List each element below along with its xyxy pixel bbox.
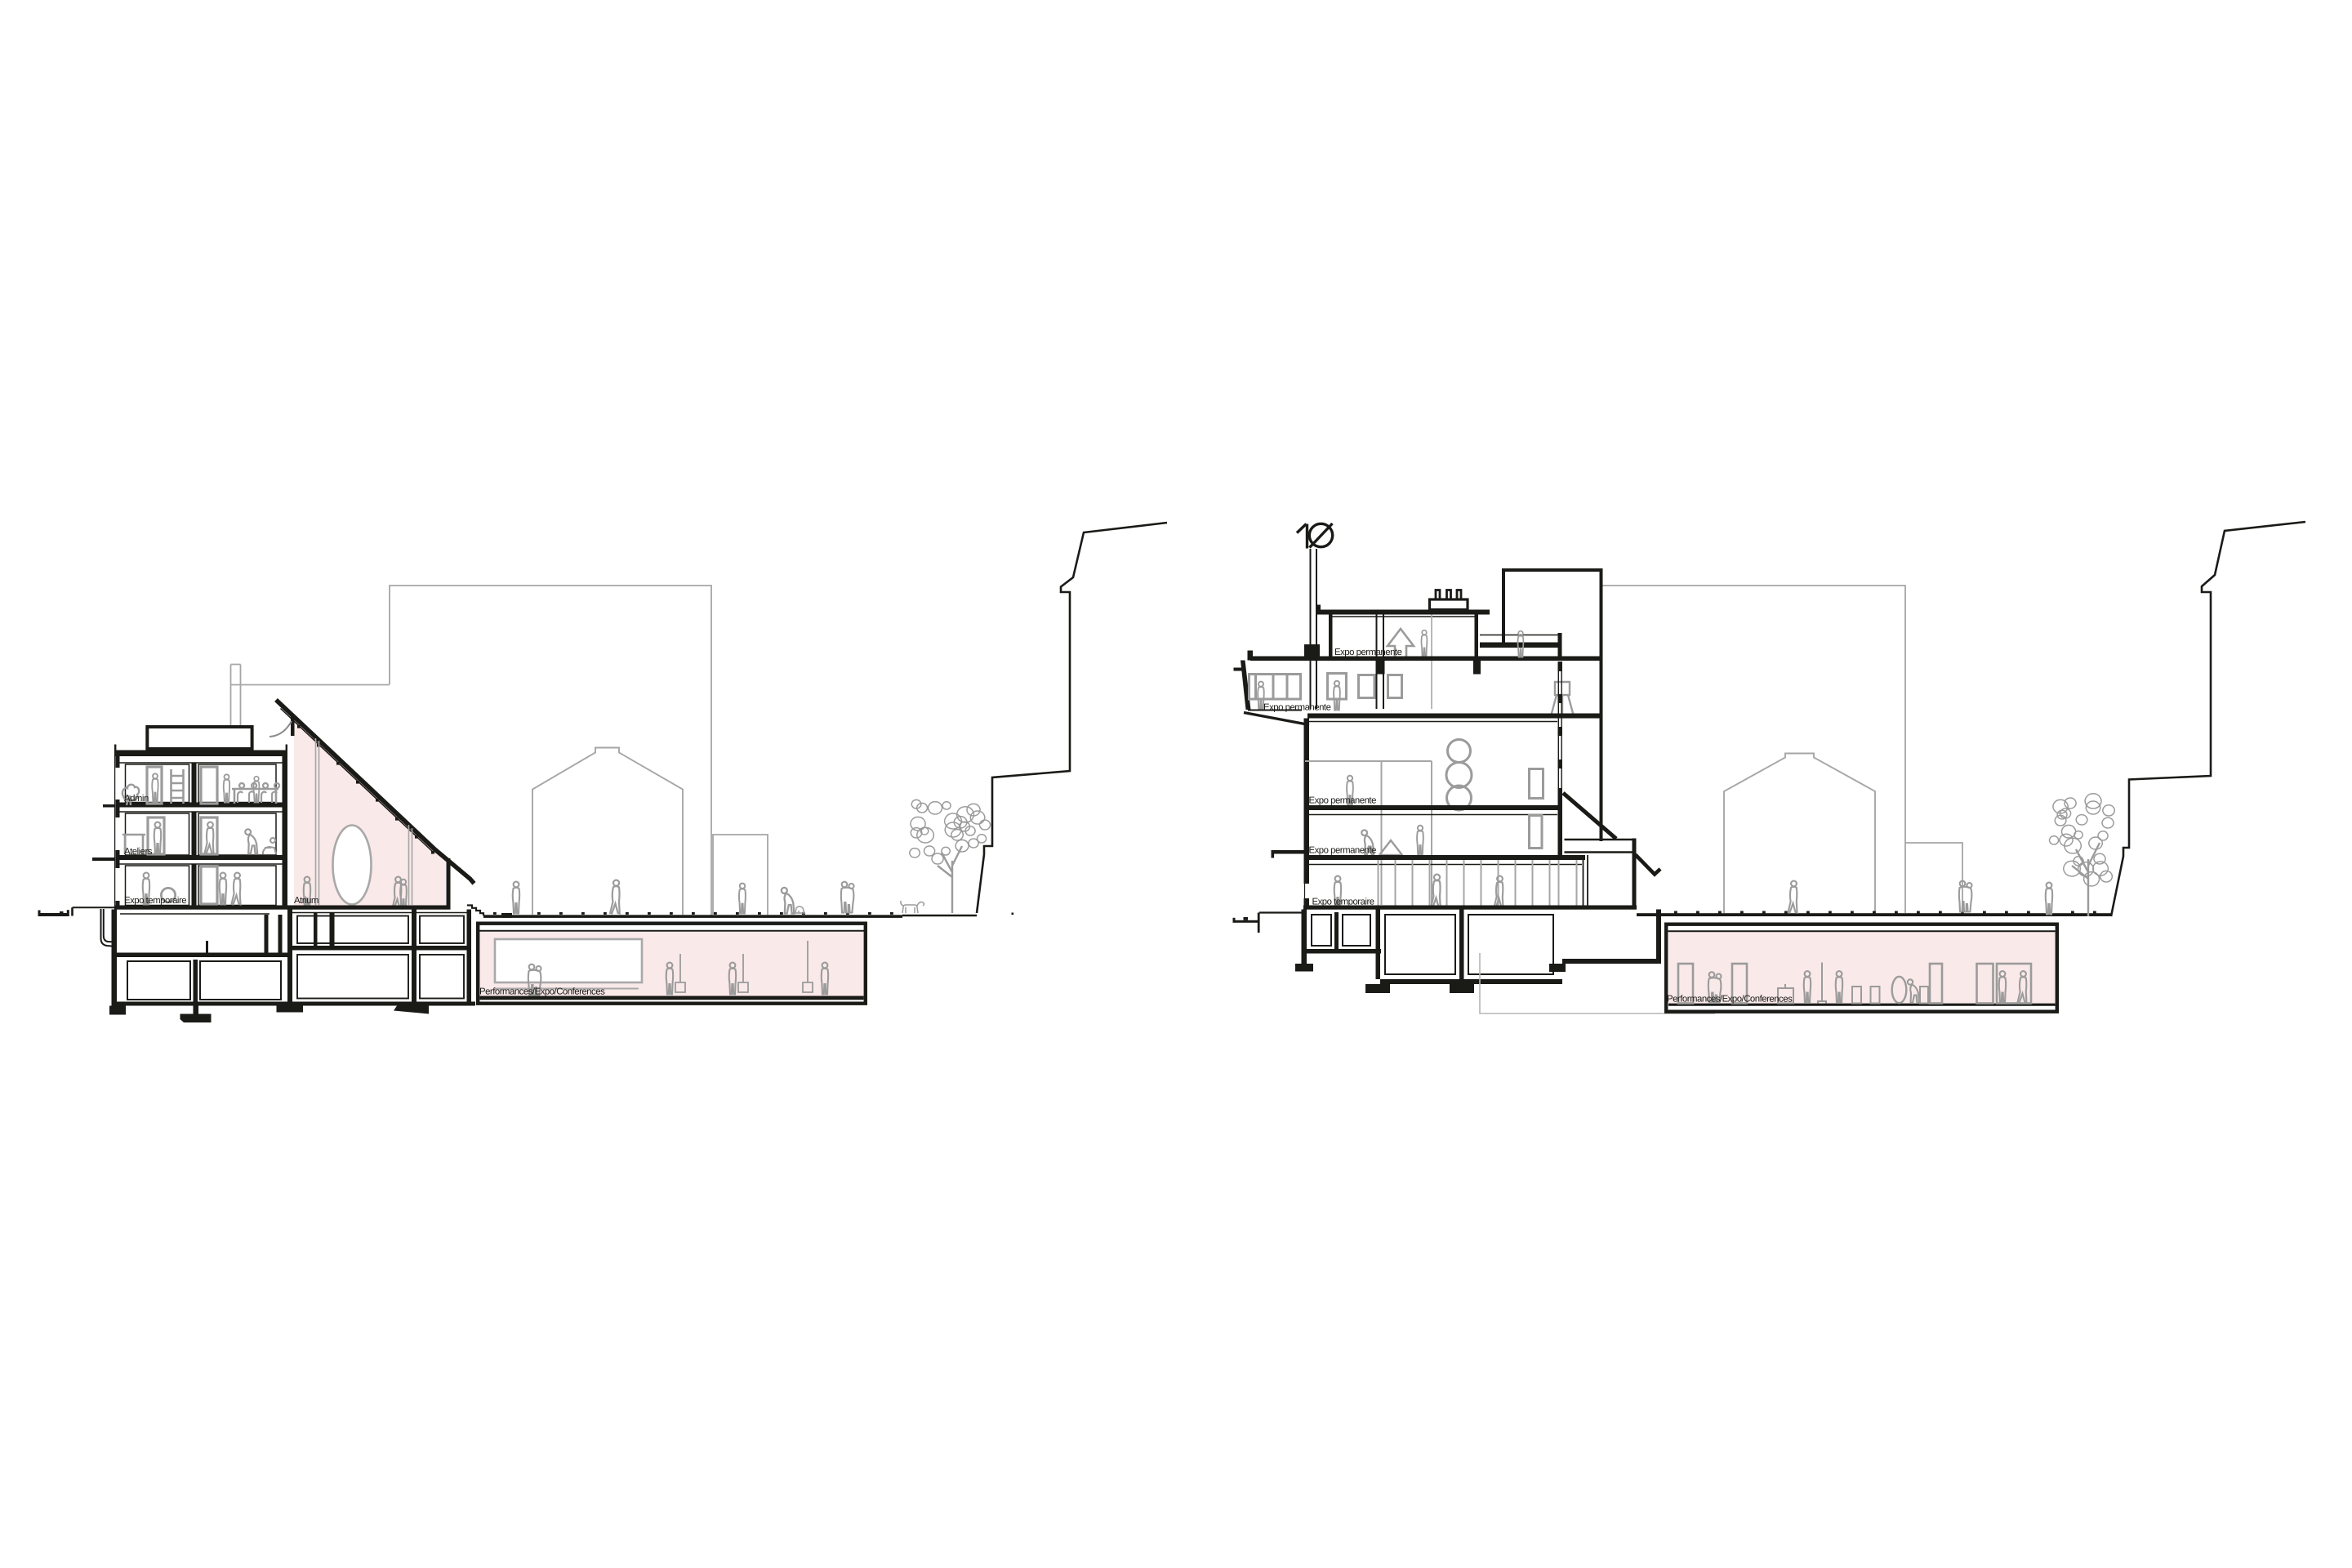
svg-text:Atrium: Atrium — [294, 896, 318, 906]
svg-text:Expo permanente: Expo permanente — [1263, 703, 1331, 713]
svg-text:Ateliers: Ateliers — [124, 847, 153, 857]
svg-text:Expo temporaire: Expo temporaire — [1312, 898, 1374, 907]
svg-text:Admin: Admin — [124, 794, 149, 804]
svg-text:Expo permanente: Expo permanente — [1308, 846, 1376, 856]
svg-text:Expo permanente: Expo permanente — [1308, 796, 1376, 806]
svg-text:Expo temporaire: Expo temporaire — [124, 896, 186, 906]
svg-text:Expo permanente: Expo permanente — [1334, 648, 1402, 657]
svg-text:Performances/Expo/Conferences: Performances/Expo/Conferences — [479, 987, 605, 997]
svg-text:Performances/Expo/Conferences: Performances/Expo/Conferences — [1667, 995, 1793, 1004]
